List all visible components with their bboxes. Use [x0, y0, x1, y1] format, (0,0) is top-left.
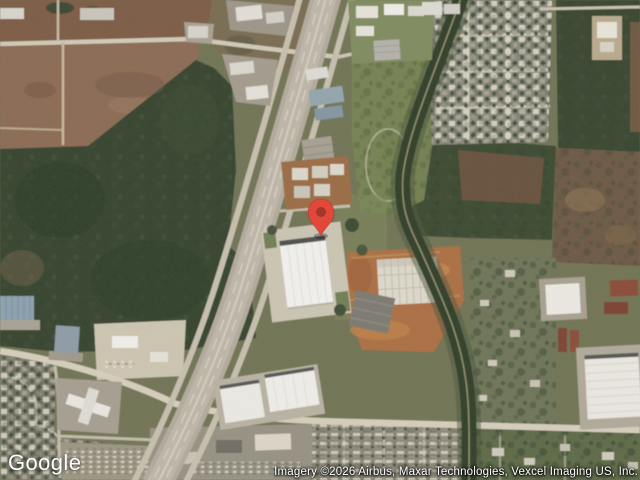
marker-inner-dot	[316, 207, 326, 217]
imagery-attribution: Imagery ©2026 Airbus, Maxar Technologies…	[274, 466, 638, 478]
image-grain	[0, 0, 640, 480]
satellite-imagery	[0, 0, 640, 480]
google-logo[interactable]: Google	[8, 450, 81, 476]
satellite-map[interactable]: Google Imagery ©2026 Airbus, Maxar Techn…	[0, 0, 640, 480]
